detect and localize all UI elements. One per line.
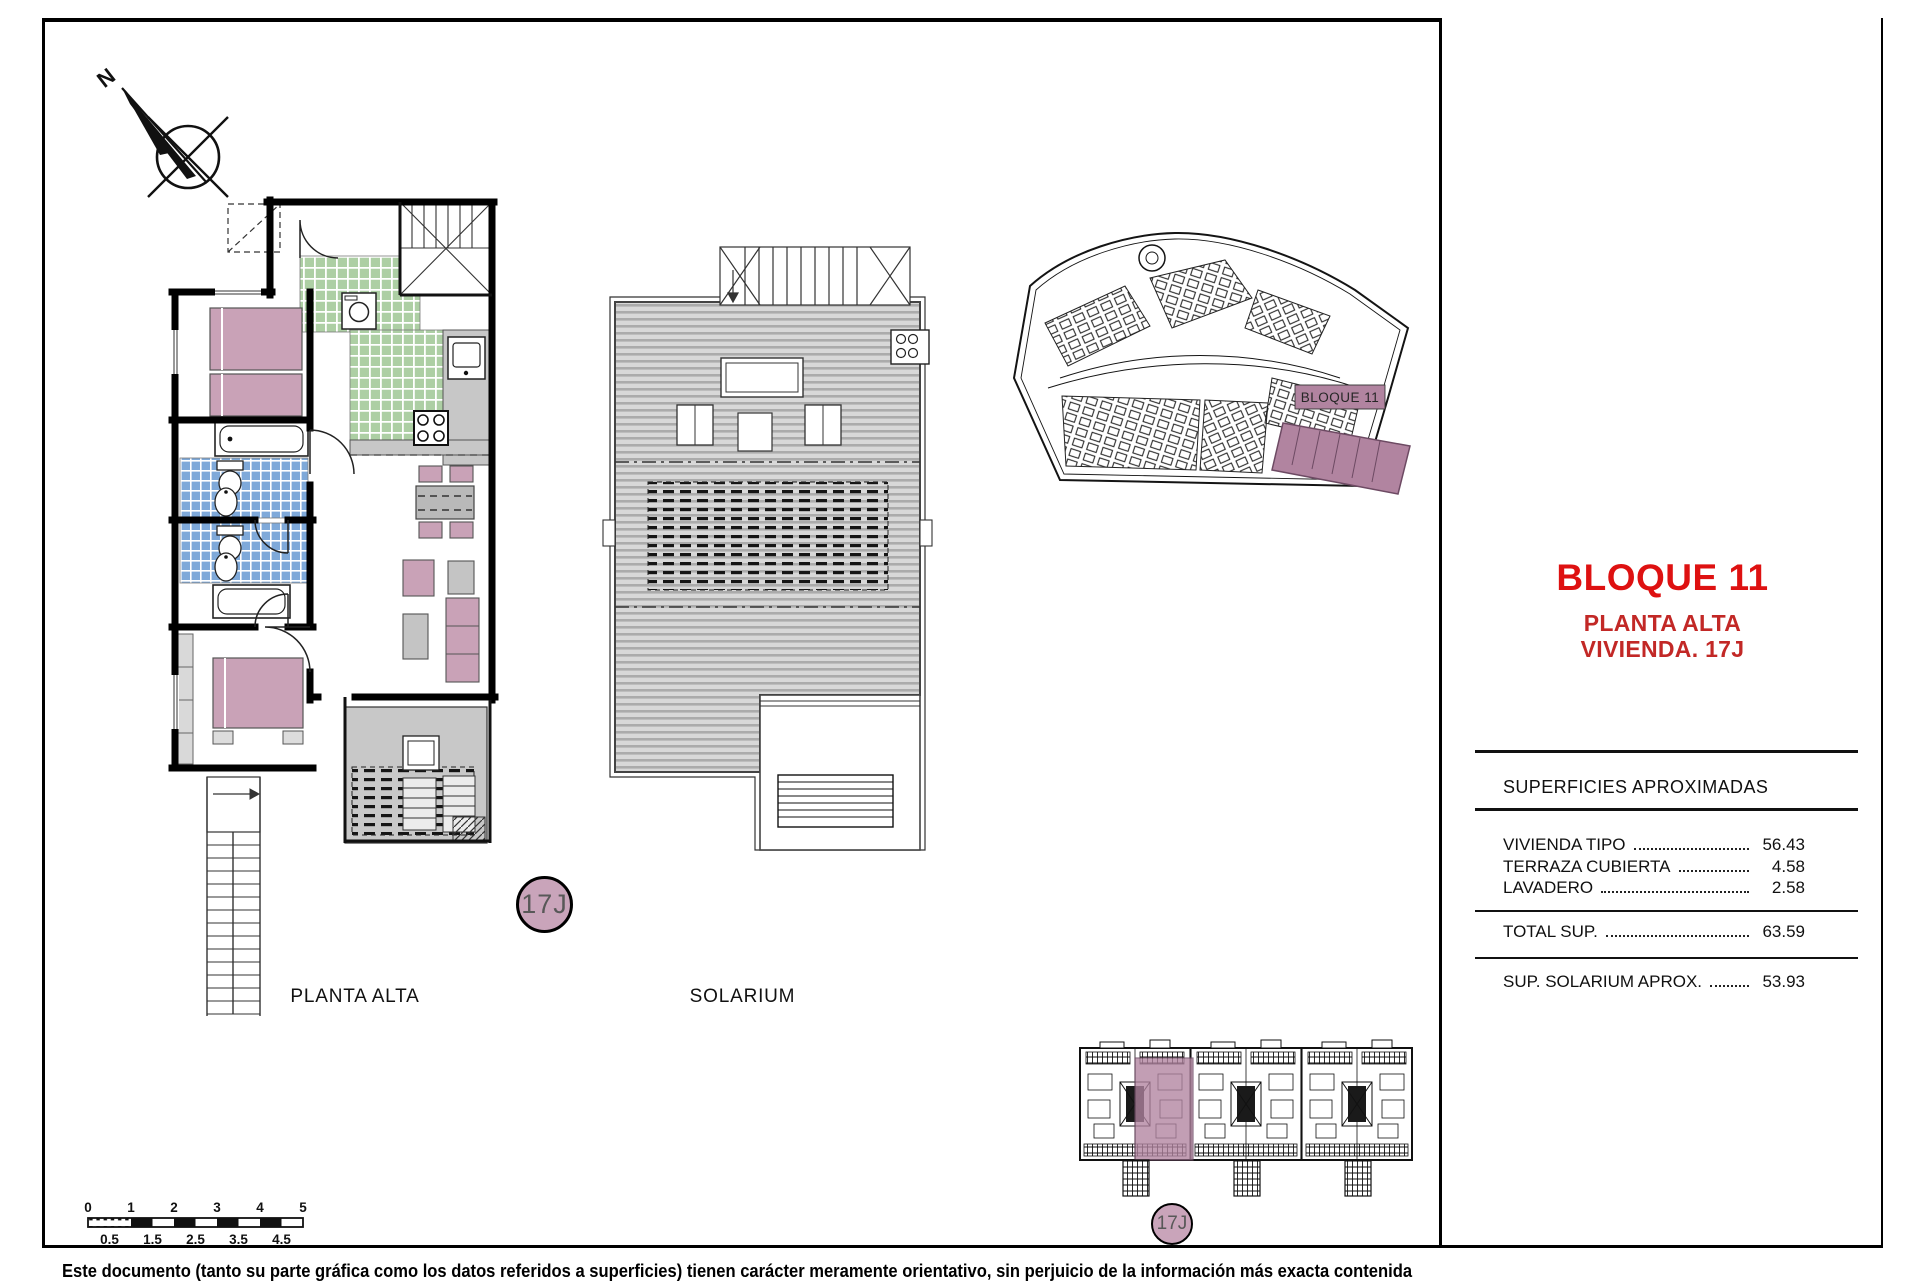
- floor-plan-label: PLANTA ALTA: [250, 986, 460, 1008]
- highlighted-unit: [1135, 1058, 1193, 1160]
- table-rule: [1475, 910, 1858, 912]
- row-label: TOTAL SUP.: [1503, 922, 1598, 942]
- block-key-plan: [1075, 1038, 1440, 1263]
- surfaces-rows: VIVIENDA TIPO 56.43 TERRAZA CUBIERTA 4.5…: [1503, 835, 1805, 900]
- bath2-tiles: [180, 523, 308, 583]
- unit-badge: 17J: [516, 876, 573, 933]
- unit-badge-key: 17J: [1151, 1203, 1193, 1245]
- scale-tick: 2.5: [186, 1232, 205, 1247]
- exterior-stair: [207, 777, 260, 1016]
- roof-louvre: [778, 775, 893, 827]
- table-row: LAVADERO 2.58: [1503, 878, 1805, 900]
- sink1-icon: [215, 488, 237, 516]
- row-label: VIVIENDA TIPO: [1503, 835, 1626, 855]
- table-rule: [1475, 808, 1858, 811]
- scale-tick: 4.5: [272, 1232, 291, 1247]
- table-row: TERRAZA CUBIERTA 4.58: [1503, 857, 1805, 879]
- bathtub2-icon: [213, 585, 290, 618]
- row-value: 2.58: [1755, 878, 1805, 898]
- bathtub1-icon: [215, 422, 308, 456]
- pergola-zone: [648, 482, 888, 590]
- site-block-label: BLOQUE 11: [1295, 385, 1385, 409]
- side-table: [448, 561, 474, 594]
- scale-tick: 0: [84, 1200, 92, 1215]
- hob-icon: [414, 411, 448, 445]
- floor-plan: [160, 190, 520, 1020]
- bedroom2-bed: [213, 658, 303, 744]
- scale-tick: 5: [299, 1200, 307, 1215]
- scale-tick: 2: [170, 1200, 178, 1215]
- scale-tick: 1.5: [143, 1232, 162, 1247]
- leader-dots: [1634, 847, 1749, 850]
- leader-dots: [1606, 934, 1749, 937]
- scale-tick: 3: [213, 1200, 221, 1215]
- block-subtitle: PLANTA ALTA VIVIENDA. 17J: [1442, 610, 1883, 662]
- armchair: [403, 560, 434, 596]
- table-rule: [1475, 957, 1858, 959]
- kitchen-sink-icon: [448, 337, 485, 379]
- scale-bar: 0 1 2 3 4 5 0.5 1.5 2.5 3.5 4.5: [66, 1196, 326, 1258]
- solarium-plan: [595, 190, 940, 890]
- row-value: 63.59: [1755, 922, 1805, 942]
- north-compass: N: [70, 40, 235, 215]
- table-row-solarium: SUP. SOLARIUM APROX. 53.93: [1503, 972, 1805, 994]
- sink2-icon: [215, 553, 237, 581]
- row-label: TERRAZA CUBIERTA: [1503, 857, 1671, 877]
- row-value: 53.93: [1755, 972, 1805, 992]
- dining-set: [416, 466, 474, 538]
- sofa: [446, 598, 479, 682]
- block-subtitle-line2: VIVIENDA. 17J: [1442, 636, 1883, 662]
- wardrobe: [177, 634, 193, 764]
- block-subtitle-line1: PLANTA ALTA: [1442, 610, 1883, 636]
- bbq-icon: [891, 330, 929, 364]
- footer-disclaimer: Este documento (tanto su parte gráfica c…: [62, 1261, 1412, 1282]
- row-label: SUP. SOLARIUM APROX.: [1503, 972, 1702, 992]
- solarium-stair: [720, 247, 910, 305]
- bedroom1-beds: [210, 308, 302, 416]
- scale-tick: 3.5: [229, 1232, 248, 1247]
- row-value: 4.58: [1755, 857, 1805, 877]
- leader-dots: [1601, 890, 1749, 893]
- scale-tick: 1: [127, 1200, 135, 1215]
- bath1-tiles: [180, 458, 308, 518]
- solarium-label: SOLARIUM: [660, 986, 825, 1008]
- washing-machine-icon: [342, 293, 376, 329]
- north-label: N: [92, 63, 120, 92]
- table-rule: [1475, 750, 1858, 753]
- scale-tick: 0.5: [100, 1232, 119, 1247]
- row-value: 56.43: [1755, 835, 1805, 855]
- terrace: [345, 707, 487, 843]
- table-row: VIVIENDA TIPO 56.43: [1503, 835, 1805, 857]
- leader-dots: [1679, 869, 1749, 872]
- tv-unit: [403, 614, 428, 659]
- site-block-label-text: BLOQUE 11: [1301, 390, 1380, 405]
- scale-tick: 4: [256, 1200, 264, 1215]
- building-strip: [1080, 1040, 1412, 1196]
- row-label: LAVADERO: [1503, 878, 1593, 898]
- block-title: BLOQUE 11: [1442, 557, 1883, 599]
- table-row-total: TOTAL SUP. 63.59: [1503, 922, 1805, 944]
- interior-stair: [400, 202, 492, 295]
- site-plan: BLOQUE 11: [1000, 228, 1430, 498]
- surfaces-header: SUPERFICIES APROXIMADAS: [1503, 777, 1768, 798]
- leader-dots: [1710, 984, 1749, 987]
